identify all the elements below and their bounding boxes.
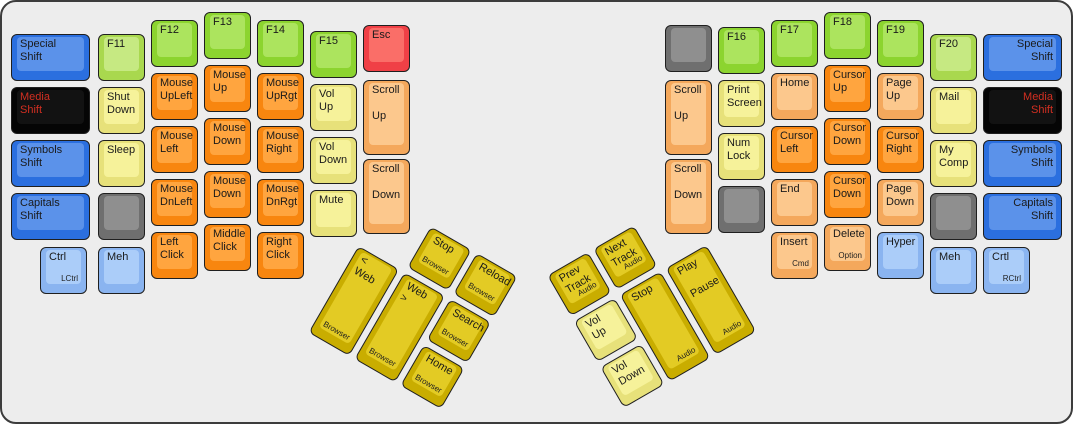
key-print-screen[interactable]: Print Screen [718,80,765,127]
key-right-click[interactable]: Right Click [257,232,304,279]
key-top: StopBrowser [418,232,465,279]
key-top: Page Down [883,182,918,216]
key-f16[interactable]: F16 [718,27,765,74]
key-top: Meh [104,250,139,284]
key-label: Play Pause [675,253,720,301]
key-top: Cursor Down [830,174,865,208]
key-label: Meh [107,251,136,264]
key-sublabel: Browser [464,279,499,304]
key-top: F13 [210,15,245,49]
key-top: Middle Click [210,227,245,261]
key-cursor-left[interactable]: Cursor Left [771,126,818,173]
key-label: < Web [351,254,389,291]
key-mouse-left[interactable]: Mouse Left [151,126,198,173]
key-top: Esc [369,28,404,62]
key-top: Vol Up [580,303,627,350]
key-sublabel: LCtrl [61,274,78,283]
key-top: CrtlRCtrl [989,250,1024,284]
key-rctrl[interactable]: CrtlRCtrl [983,247,1030,294]
key-top: F20 [936,37,971,71]
key-label: Mouse Down [213,122,242,148]
key-label: Scroll Down [372,163,401,202]
key-label: Mouse Left [160,130,189,156]
key-top: Vol Down [607,349,654,396]
key-top: Page Up [883,76,918,110]
key-delete[interactable]: DeleteOption [824,224,871,271]
key-blank-right-mid[interactable] [718,186,765,233]
key-top: Capitals Shift [989,196,1056,230]
key-cursor-down-2[interactable]: Cursor Down [824,171,871,218]
key-label: Left Click [160,236,189,262]
key-page-down[interactable]: Page Down [877,179,924,226]
key-label: Symbols Shift [992,144,1053,170]
key-mouse-down-2[interactable]: Mouse Down [204,171,251,218]
key-top: Mute [316,193,351,227]
key-meh-right[interactable]: Meh [930,247,977,294]
key-mouse-down-1[interactable]: Mouse Down [204,118,251,165]
key-label: Shut Down [107,91,136,117]
key-media-shift-right[interactable]: Media Shift [983,87,1062,134]
key-sublabel: Option [838,251,862,260]
key-top: Vol Up [316,87,351,121]
key-label: Cursor Down [833,122,862,148]
key-top [104,196,139,230]
key-top: Right Click [263,235,298,269]
key-sublabel: Browser [411,371,446,396]
key-label: Insert [780,236,809,249]
key-top: Media Shift [17,90,84,124]
key-label: Cursor Left [780,130,809,156]
key-top: Cursor Left [777,129,812,163]
key-f20[interactable]: F20 [930,34,977,81]
key-label: Special Shift [992,38,1053,64]
key-sublabel: Browser [365,345,400,370]
key-blank-right-low[interactable] [930,193,977,240]
key-label: Scroll Up [372,84,401,123]
key-end[interactable]: End [771,179,818,226]
key-top: Mouse UpRgt [263,76,298,110]
key-label: Page Down [886,183,915,209]
key-top [671,28,706,62]
key-top: Next TrackAudio [600,231,647,278]
key-cursor-down-1[interactable]: Cursor Down [824,118,871,165]
key-top [936,196,971,230]
key-top: Meh [936,250,971,284]
key-label: Stop [629,279,661,305]
key-top: Mail [936,90,971,124]
key-label: Vol Down [610,352,648,389]
key-top: CtrlLCtrl [46,250,81,284]
key-sleep[interactable]: Sleep [98,140,145,187]
key-cursor-up[interactable]: Cursor Up [824,65,871,112]
key-top: Vol Down [316,140,351,174]
key-f11[interactable]: F11 [98,34,145,81]
key-top: F15 [316,34,351,68]
key-esc[interactable]: Esc [363,25,410,72]
key-scroll-up-left[interactable]: Scroll Up [363,80,410,155]
key-mouse-uprgt[interactable]: Mouse UpRgt [257,73,304,120]
key-symbols-shift-right[interactable]: Symbols Shift [983,140,1062,187]
key-f12[interactable]: F12 [151,20,198,67]
key-label: Cursor Right [886,130,915,156]
key-top: HomeBrowser [410,350,457,397]
key-top: Mouse Right [263,129,298,163]
key-f19[interactable]: F19 [877,20,924,67]
key-label: F16 [727,31,756,44]
key-label: Scroll Up [674,84,703,123]
key-capitals-shift-right[interactable]: Capitals Shift [983,193,1062,240]
key-top: DeleteOption [830,227,865,261]
key-shut-down[interactable]: Shut Down [98,87,145,134]
key-top: Symbols Shift [17,143,84,177]
key-label: Mouse DnLeft [160,183,189,209]
key-f14[interactable]: F14 [257,20,304,67]
key-label: Search [450,307,482,333]
key-label: Num Lock [727,137,756,163]
keyboard-frame: Special ShiftMedia ShiftSymbols ShiftCap… [0,0,1073,424]
key-top: Cursor Right [883,129,918,163]
key-my-comp[interactable]: My Comp [930,140,977,187]
key-top: F19 [883,23,918,57]
key-label: F19 [886,24,915,37]
key-num-lock[interactable]: Num Lock [718,133,765,180]
key-label: Delete [833,228,862,241]
key-label: Mouse Right [266,130,295,156]
key-top: Mouse UpLeft [157,76,192,110]
key-mouse-dnrgt[interactable]: Mouse DnRgt [257,179,304,226]
key-label: Media Shift [20,91,81,117]
key-mouse-up[interactable]: Mouse Up [204,65,251,112]
key-sublabel: Browser [437,325,472,350]
key-label: Vol Up [319,88,348,114]
key-label: Mouse DnRgt [266,183,295,209]
key-top: Special Shift [17,37,84,71]
key-blank-left[interactable] [98,193,145,240]
key-capitals-shift-left[interactable]: Capitals Shift [11,193,90,240]
key-insert[interactable]: InsertCmd [771,232,818,279]
key-label: Page Up [886,77,915,103]
key-label: Home [423,353,455,379]
key-vol-up-left[interactable]: Vol Up [310,84,357,131]
key-label: Mouse UpLeft [160,77,189,103]
key-mail[interactable]: Mail [930,87,977,134]
key-label: Home [780,77,809,90]
key-top: F18 [830,15,865,49]
key-label: Cursor Down [833,175,862,201]
key-label: F11 [107,38,136,51]
key-f17[interactable]: F17 [771,20,818,67]
key-media-shift-left[interactable]: Media Shift [11,87,90,134]
key-label: Stop [430,234,462,260]
key-sublabel: Audio [721,319,743,337]
key-sublabel: Browser [319,318,354,343]
key-label: F20 [939,38,968,51]
key-label: Mute [319,194,348,207]
key-top: Scroll Up [369,83,404,145]
key-top [724,189,759,223]
key-top: Special Shift [989,37,1056,71]
key-top: InsertCmd [777,235,812,269]
key-label: Esc [372,29,401,42]
key-sublabel: RCtrl [1003,274,1021,283]
key-top: Mouse Down [210,174,245,208]
key-lctrl[interactable]: CtrlLCtrl [40,247,87,294]
key-scroll-up-right[interactable]: Scroll Up [665,80,712,155]
key-label: Ctrl [49,251,78,264]
key-top: Mouse Left [157,129,192,163]
key-top: Mouse Up [210,68,245,102]
key-label: Right Click [266,236,295,262]
key-label: Media Shift [992,91,1053,117]
key-symbols-shift-left[interactable]: Symbols Shift [11,140,90,187]
key-top: Symbols Shift [989,143,1056,177]
key-label: Middle Click [213,228,242,254]
key-label: End [780,183,809,196]
key-label: Meh [939,251,968,264]
key-label: Symbols Shift [20,144,81,170]
key-label: Special Shift [20,38,81,64]
key-blank-right-top[interactable] [665,25,712,72]
key-f13[interactable]: F13 [204,12,251,59]
key-f15[interactable]: F15 [310,31,357,78]
key-top: Print Screen [724,83,759,117]
key-top: My Comp [936,143,971,177]
key-top: Shut Down [104,90,139,124]
key-special-shift-left[interactable]: Special Shift [11,34,90,81]
key-mouse-dnleft[interactable]: Mouse DnLeft [151,179,198,226]
key-sublabel: Audio [675,345,697,363]
keyboard: Special ShiftMedia ShiftSymbols ShiftCap… [2,2,1071,422]
key-vol-down-left[interactable]: Vol Down [310,137,357,184]
key-top: Num Lock [724,136,759,170]
key-top: Prev TrackAudio [554,258,601,305]
key-left-click[interactable]: Left Click [151,232,198,279]
key-top: Capitals Shift [17,196,84,230]
key-label: Capitals Shift [20,197,81,223]
key-top: F14 [263,23,298,57]
key-top: Scroll Up [671,83,706,145]
key-top: F17 [777,23,812,57]
key-label: Mail [939,91,968,104]
key-label: Vol Up [584,306,622,343]
key-top: Mouse DnRgt [263,182,298,216]
key-label: Print Screen [727,84,756,110]
key-label: F12 [160,24,189,37]
key-mute[interactable]: Mute [310,190,357,237]
key-top: Sleep [104,143,139,177]
key-meh-left[interactable]: Meh [98,247,145,294]
key-label: Mouse Up [213,69,242,95]
key-top: End [777,182,812,216]
key-top: F12 [157,23,192,57]
key-label: F17 [780,24,809,37]
key-label: Crtl [992,251,1021,264]
key-cursor-right[interactable]: Cursor Right [877,126,924,173]
key-label: F13 [213,16,242,29]
key-top: Left Click [157,235,192,269]
key-top: Media Shift [989,90,1056,124]
key-top: F11 [104,37,139,71]
key-sublabel: Browser [418,253,453,278]
key-top: Cursor Down [830,121,865,155]
key-home-right[interactable]: Home [771,73,818,120]
key-label: My Comp [939,144,968,170]
key-label: F15 [319,35,348,48]
key-label: Mouse UpRgt [266,77,295,103]
key-top: ReloadBrowser [463,259,510,306]
key-top: Mouse DnLeft [157,182,192,216]
key-label: Scroll Down [674,163,703,202]
key-label: Sleep [107,144,136,157]
key-label: Reload [476,261,508,287]
key-hyper[interactable]: Hyper [877,232,924,279]
key-special-shift-right[interactable]: Special Shift [983,34,1062,81]
key-label: F18 [833,16,862,29]
key-top: Hyper [883,235,918,269]
key-mouse-upleft[interactable]: Mouse UpLeft [151,73,198,120]
key-top: SearchBrowser [437,304,484,351]
key-sublabel: Cmd [792,259,809,268]
key-label: Capitals Shift [992,197,1053,223]
key-label: Hyper [886,236,915,249]
key-middle-click[interactable]: Middle Click [204,224,251,271]
key-top: F16 [724,30,759,64]
key-label: Cursor Up [833,69,862,95]
key-label: Mouse Down [213,175,242,201]
key-label: Vol Down [319,141,348,167]
key-top: Home [777,76,812,110]
key-f18[interactable]: F18 [824,12,871,59]
key-label: Web > [397,280,435,317]
key-page-up[interactable]: Page Up [877,73,924,120]
key-top: Mouse Down [210,121,245,155]
key-top: Cursor Up [830,68,865,102]
key-label: F14 [266,24,295,37]
key-mouse-right[interactable]: Mouse Right [257,126,304,173]
